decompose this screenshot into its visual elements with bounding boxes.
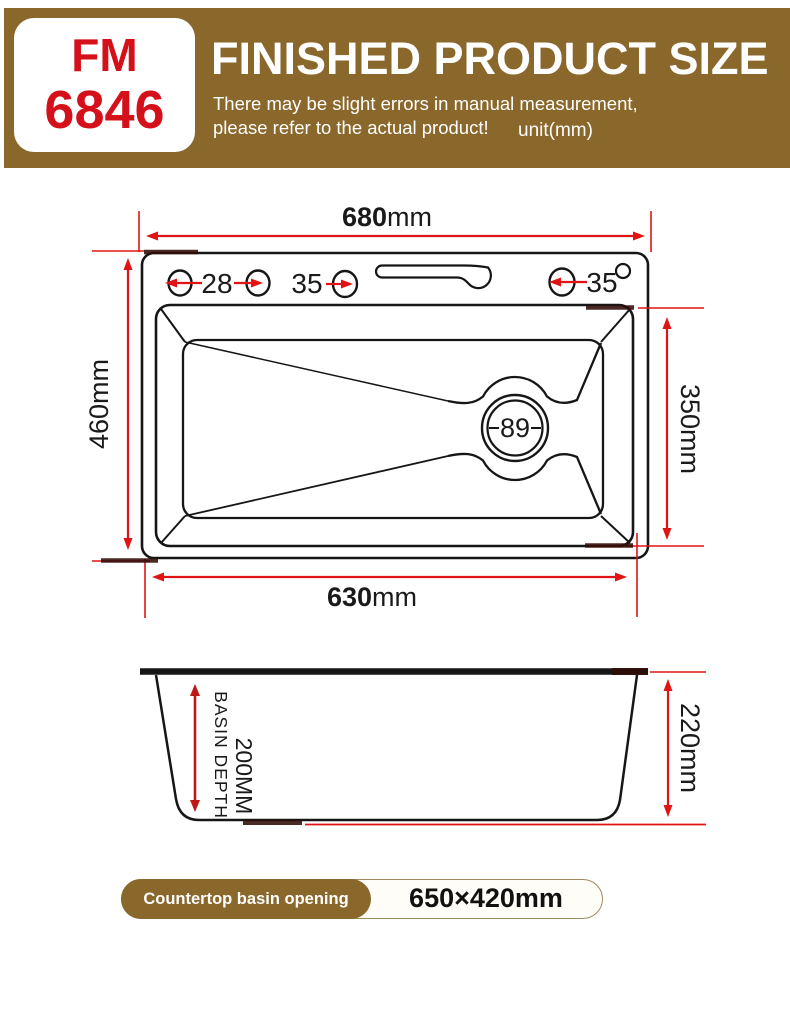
disclaimer-line2: please refer to the actual product! (213, 117, 489, 139)
top-view: 89 28 35 35 (142, 253, 648, 558)
dim-width-bottom-label: 630mm (327, 582, 417, 612)
dim-basin-depth (190, 684, 200, 812)
dim-height-left: 460mm (84, 258, 150, 561)
basin-depth-label: BASIN DEPTH (211, 691, 231, 819)
dim-height-left-label: 460mm (84, 359, 114, 449)
countertop-opening-callout: Countertop basin opening 650×420mm (121, 879, 603, 919)
fold-line-top (185, 342, 448, 401)
deck-small-hole (616, 264, 630, 278)
page-title: FINISHED PRODUCT SIZE (211, 34, 786, 84)
dark-print-marks (101, 252, 648, 823)
drain-wave-bottom (448, 454, 601, 514)
corner-fold-lines (161, 309, 630, 543)
dim-height-right-label: 350mm (675, 384, 705, 474)
disclaimer-line1: There may be slight errors in manual mea… (213, 93, 638, 115)
header-banner: FM 6846 FINISHED PRODUCT SIZE There may … (4, 8, 790, 168)
drain-diameter-label: 89 (500, 413, 530, 443)
dim-width-top: 680mm (92, 202, 651, 252)
dim-width-top-label: 680mm (342, 202, 432, 232)
model-code-line1: FM (71, 30, 137, 80)
countertop-opening-label: Countertop basin opening (121, 879, 371, 919)
model-badge: FM 6846 (14, 18, 195, 152)
drain: 89 (482, 395, 548, 461)
fold-line-bottom (185, 456, 448, 516)
sink-dimension-drawing: 89 28 35 35 (0, 180, 790, 870)
waterfall-slot (376, 266, 491, 289)
unit-note: unit(mm) (518, 120, 593, 142)
hole-gap-right-label: 35 (586, 267, 617, 298)
side-view: BASIN DEPTH 200MM 220mm (140, 672, 706, 825)
hole-gap-mid-label: 35 (291, 268, 322, 299)
basin-depth-value: 200MM (231, 738, 257, 815)
countertop-opening-value: 650×420mm (371, 880, 601, 917)
model-code-line2: 6846 (44, 80, 164, 140)
hole-gap-left-label: 28 (201, 268, 232, 299)
drain-wave-top (448, 343, 601, 403)
dim-overall-height-label: 220mm (675, 703, 705, 793)
